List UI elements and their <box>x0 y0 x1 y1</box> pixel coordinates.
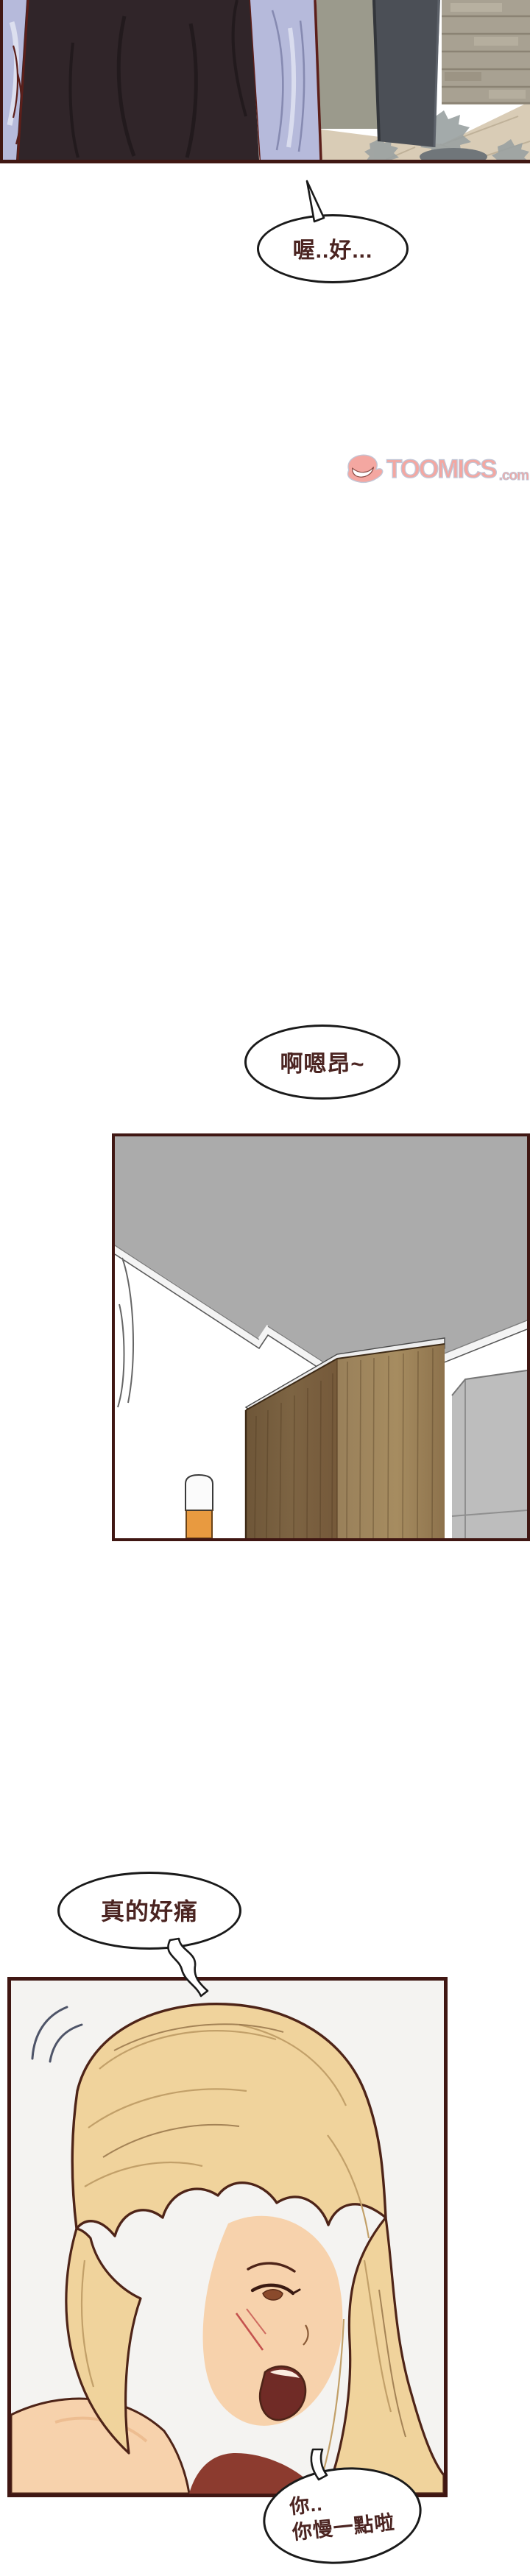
watermark: TOOMICS .com <box>344 449 529 489</box>
comic-page: 喔..好... TOOMICS .com 啊嗯昂~ <box>0 0 530 2576</box>
speech-text-3: 真的好痛 <box>101 1893 198 1927</box>
speech-text-1: 喔..好... <box>293 232 373 264</box>
wall-green-gray <box>317 0 383 129</box>
right-wall <box>452 1370 527 1538</box>
man-vest-back <box>16 0 261 160</box>
cigarette <box>185 1475 213 1538</box>
speech-bubble-3: 真的好痛 <box>57 1872 241 1950</box>
panel-man-back-view <box>0 0 530 163</box>
winking-eye-logo-icon <box>344 451 384 486</box>
bubble-4-tail <box>305 2448 333 2482</box>
watermark-brand-text: TOOMICS <box>386 456 496 482</box>
speech-bubble-1: 喔..好... <box>257 214 409 283</box>
panel-2-artwork <box>115 1136 527 1538</box>
panel-woman-pained <box>7 1977 448 2497</box>
bubble-1-tail <box>302 177 331 228</box>
speech-text-4-line1: 你.. <box>289 2493 324 2519</box>
man-right-arm-shirt <box>250 0 321 160</box>
stone-tile-wall <box>442 0 530 105</box>
watermark-suffix-text: .com <box>499 468 529 484</box>
speech-bubble-2: 啊嗯昂~ <box>244 1025 400 1100</box>
panel-3-artwork <box>11 1981 444 2494</box>
speech-text-4: 你.. 你慢一點啦 <box>289 2484 397 2546</box>
bubble-3-tail <box>160 1936 213 2003</box>
speech-text-2: 啊嗯昂~ <box>280 1045 364 1078</box>
panel-1-artwork <box>3 0 530 160</box>
panel-room-interior <box>112 1133 530 1541</box>
dark-pillar <box>372 0 440 147</box>
